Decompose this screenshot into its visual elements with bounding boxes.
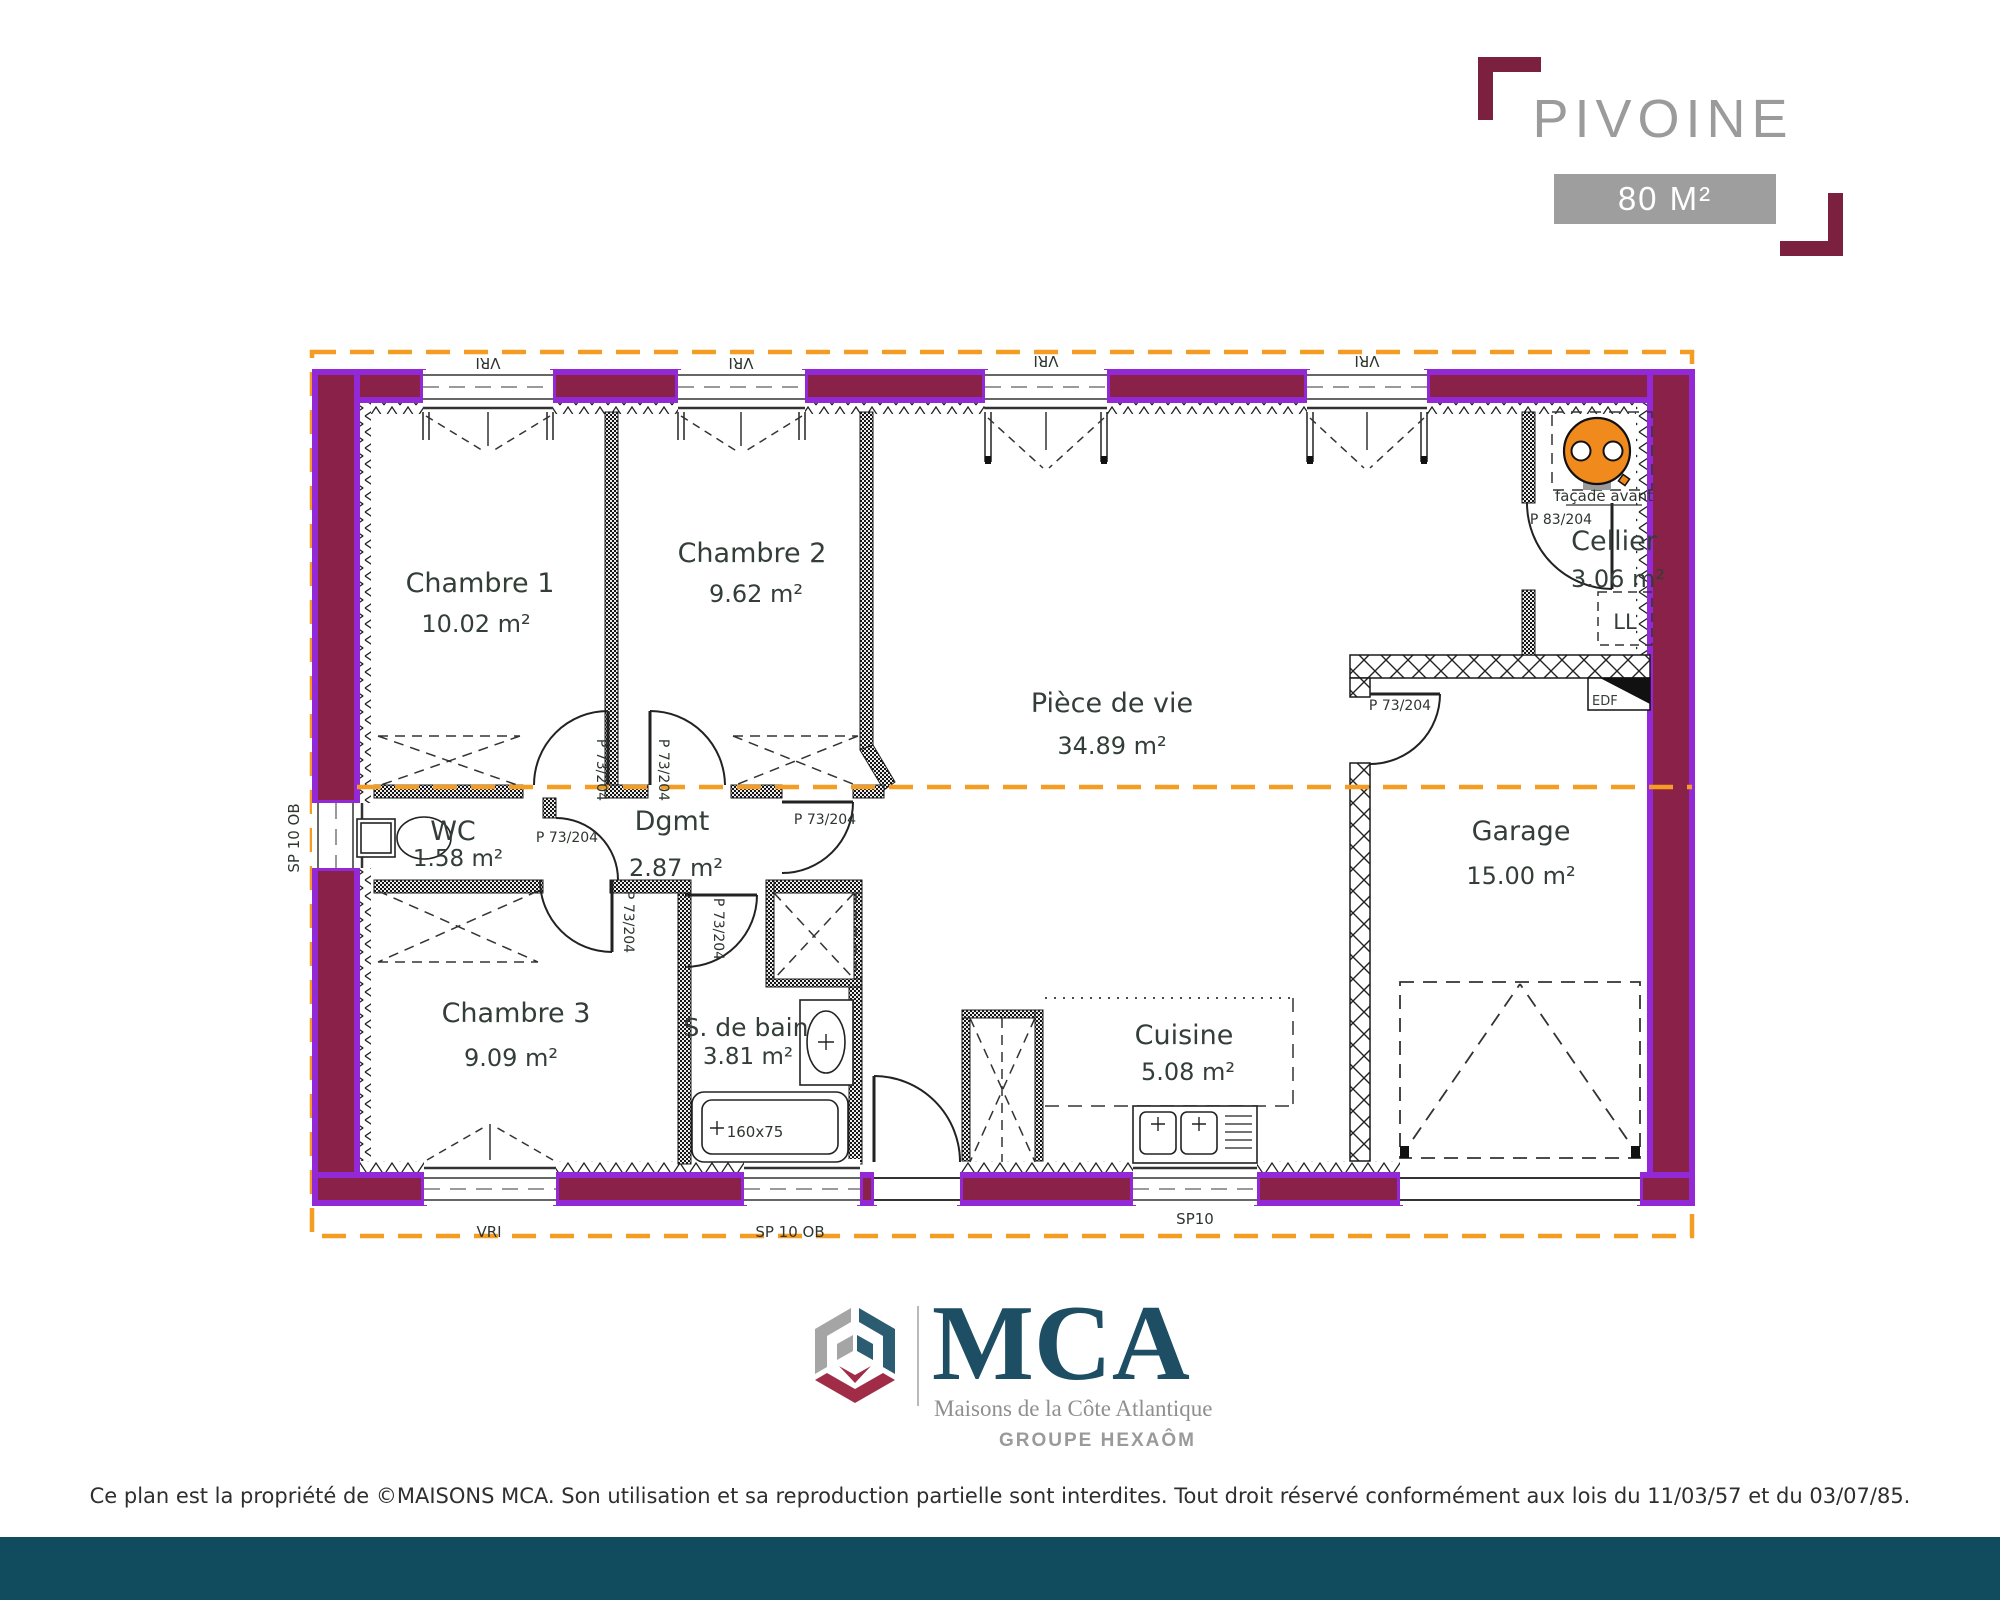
label-wc-name: WC <box>430 816 476 847</box>
label-p73-d2: P 73/204 <box>655 739 671 801</box>
label-sp10: SP10 <box>1176 1210 1214 1228</box>
label-chambre1-name: Chambre 1 <box>406 568 555 599</box>
logo-subtitle: Maisons de la Côte Atlantique <box>934 1396 1213 1422</box>
label-tub-size: 160x75 <box>727 1123 784 1141</box>
label-sdb-area: 3.81 m² <box>703 1044 793 1070</box>
label-p73-wc: P 73/204 <box>536 830 598 846</box>
label-dgmt-area: 2.87 m² <box>629 854 723 882</box>
label-chambre2-name: Chambre 2 <box>678 538 827 569</box>
label-cuisine-area: 5.08 m² <box>1141 1058 1235 1086</box>
label-vri-5: VRI <box>476 1223 501 1241</box>
label-vri-3: VRI <box>1033 352 1058 370</box>
logo-wordmark: MCA <box>932 1290 1190 1398</box>
label-sp10ob-left: SP 10 OB <box>285 803 303 872</box>
logo-group-name: GROUPE HEXAÔM <box>930 1430 1196 1452</box>
label-cellier-name: Cellier <box>1571 526 1658 557</box>
label-garage-area: 15.00 m² <box>1466 862 1575 890</box>
kitchen-sink-icon <box>1133 1106 1257 1163</box>
label-p73-d3: P 73/204 <box>620 891 636 953</box>
garage-door <box>1400 982 1640 1158</box>
kitchen-zone <box>1045 998 1293 1106</box>
label-p73-garage: P 73/204 <box>1369 698 1431 714</box>
label-vri-4: VRI <box>1354 352 1379 370</box>
label-sp10ob-bottom: SP 10 OB <box>755 1223 824 1241</box>
label-sdb-name: S. de bain <box>684 1013 809 1042</box>
label-vri-2: VRI <box>728 354 753 372</box>
footer-band <box>0 1537 2000 1600</box>
label-chambre1-area: 10.02 m² <box>421 610 530 638</box>
label-ll: LL <box>1613 610 1637 634</box>
mca-logo-cube <box>803 1302 907 1410</box>
room-labels: Chambre 1 10.02 m² Chambre 2 9.62 m² Piè… <box>406 526 1665 1086</box>
label-p73-d4: P 73/204 <box>710 898 726 960</box>
copyright-notice: Ce plan est la propriété de ©MAISONS MCA… <box>0 1484 2000 1508</box>
label-piecedevie-area: 34.89 m² <box>1057 732 1166 760</box>
logo-divider <box>917 1306 919 1406</box>
label-chambre3-name: Chambre 3 <box>442 998 591 1029</box>
label-vri-1: VRI <box>475 354 500 372</box>
label-facade-avant: façade avant <box>1555 487 1653 505</box>
label-p73-dgmt: P 73/204 <box>794 812 856 828</box>
label-piecedevie-name: Pièce de vie <box>1031 688 1193 719</box>
label-wc-area: 1.58 m² <box>413 846 503 872</box>
label-cuisine-name: Cuisine <box>1135 1020 1234 1051</box>
garage-walls <box>1350 655 1650 1161</box>
label-edf: EDF <box>1592 694 1618 709</box>
label-p73-d1: P 73/204 <box>593 739 609 801</box>
label-garage-name: Garage <box>1472 816 1571 847</box>
label-cellier-area: 3.06 m² <box>1571 565 1665 593</box>
label-chambre2-area: 9.62 m² <box>709 580 803 608</box>
page: PIVOINE 80 M² <box>0 0 2000 1600</box>
label-p83-cellier: P 83/204 <box>1530 512 1592 528</box>
label-dgmt-name: Dgmt <box>635 806 710 837</box>
label-chambre3-area: 9.09 m² <box>464 1044 558 1072</box>
